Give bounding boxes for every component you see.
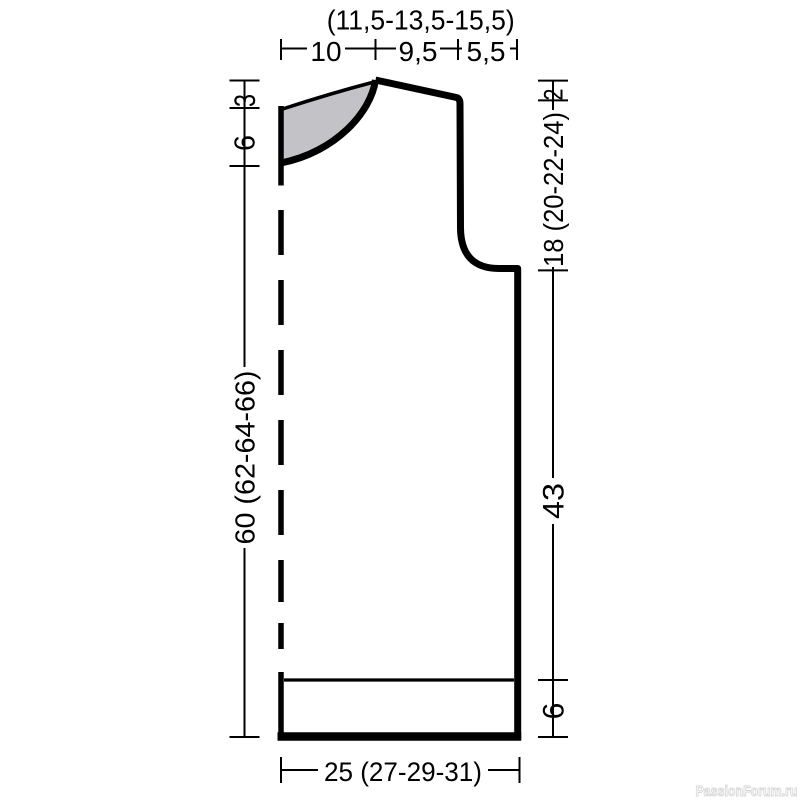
svg-text:60 (62-64-66): 60 (62-64-66) [230, 371, 261, 545]
svg-text:18 (20-22-24): 18 (20-22-24) [538, 112, 569, 267]
svg-text:(11,5-13,5-15,5): (11,5-13,5-15,5) [327, 5, 515, 36]
svg-text:5,5: 5,5 [467, 36, 506, 67]
svg-text:10: 10 [310, 36, 341, 67]
svg-text:43: 43 [538, 483, 571, 519]
svg-text:3: 3 [229, 94, 262, 107]
svg-text:25 (27-29-31): 25 (27-29-31) [324, 757, 482, 787]
svg-text:9,5: 9,5 [399, 36, 438, 67]
svg-text:6: 6 [230, 135, 262, 151]
svg-text:PassionForum.ru: PassionForum.ru [696, 783, 798, 800]
svg-text:6: 6 [538, 703, 571, 720]
svg-text:2: 2 [539, 89, 569, 101]
